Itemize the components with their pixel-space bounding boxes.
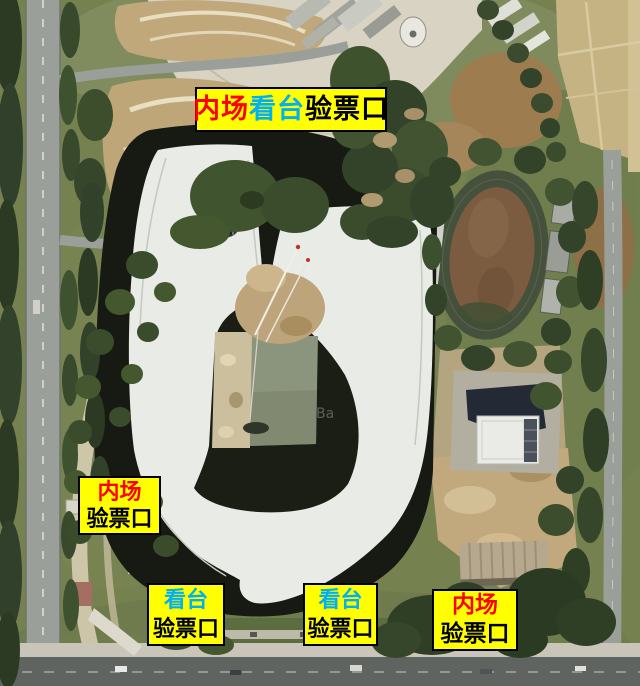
label-line: 看台 (164, 586, 208, 615)
label-text-segment: 内场 (97, 480, 141, 505)
label-line: 看台 (318, 586, 362, 615)
label-line: 内场 (97, 479, 141, 506)
label-line: 验票口 (153, 615, 219, 644)
west-gate-label: 内场验票口 (78, 476, 161, 535)
southeast-gate-label: 内场验票口 (432, 589, 518, 651)
imagery-watermark: Ba (316, 406, 334, 422)
label-text-segment: 看台 (318, 588, 362, 613)
label-line: 内场看台验票口 (193, 90, 389, 130)
label-line: 内场 (452, 591, 498, 620)
label-text-segment: 看台 (164, 588, 208, 613)
south-stand-gate-label-1: 看台验票口 (147, 583, 225, 646)
label-text-segment: 验票口 (305, 94, 389, 125)
label-text-segment: 验票口 (307, 617, 373, 642)
annotated-satellite-map: Ba (0, 0, 640, 686)
label-text-segment: 内场 (193, 94, 249, 125)
label-text-segment: 验票口 (153, 617, 219, 642)
north-gate-label: 内场看台验票口 (195, 87, 387, 132)
label-text-segment: 验票口 (86, 507, 152, 532)
label-line: 验票口 (86, 506, 152, 533)
label-text-segment: 看台 (249, 94, 305, 125)
label-text-segment: 内场 (452, 592, 498, 618)
label-line: 验票口 (307, 615, 373, 644)
south-stand-gate-label-2: 看台验票口 (303, 583, 378, 646)
label-line: 验票口 (441, 620, 510, 649)
round-pavilion (400, 17, 426, 47)
label-text-segment: 验票口 (441, 621, 510, 647)
